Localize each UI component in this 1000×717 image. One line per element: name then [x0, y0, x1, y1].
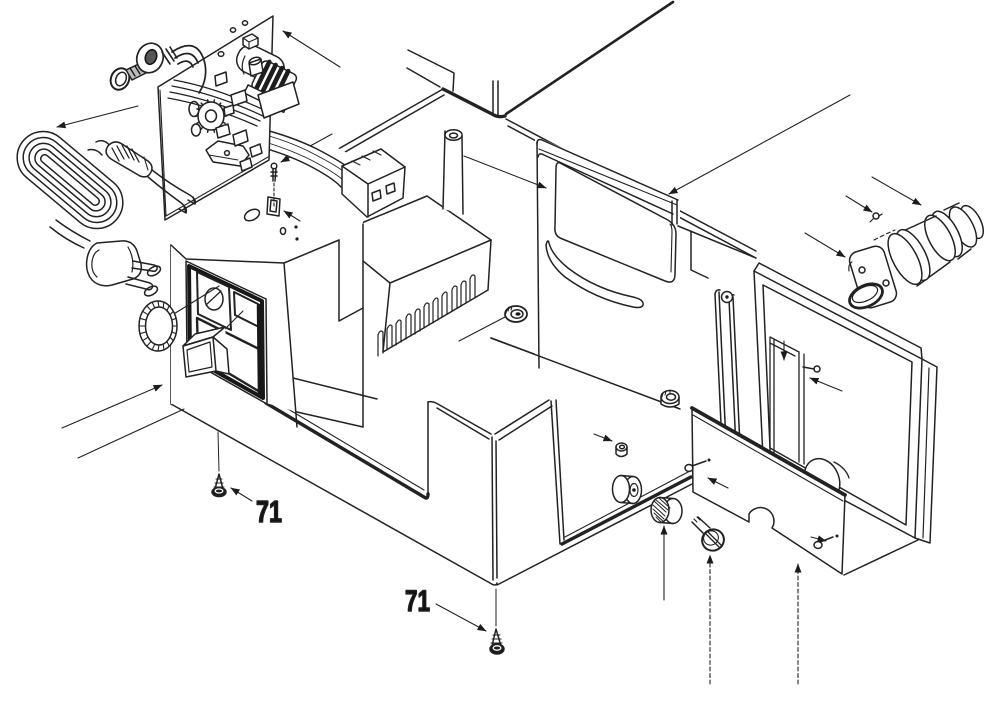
svg-text:71: 71	[405, 585, 430, 618]
svg-text:71: 71	[256, 494, 282, 529]
